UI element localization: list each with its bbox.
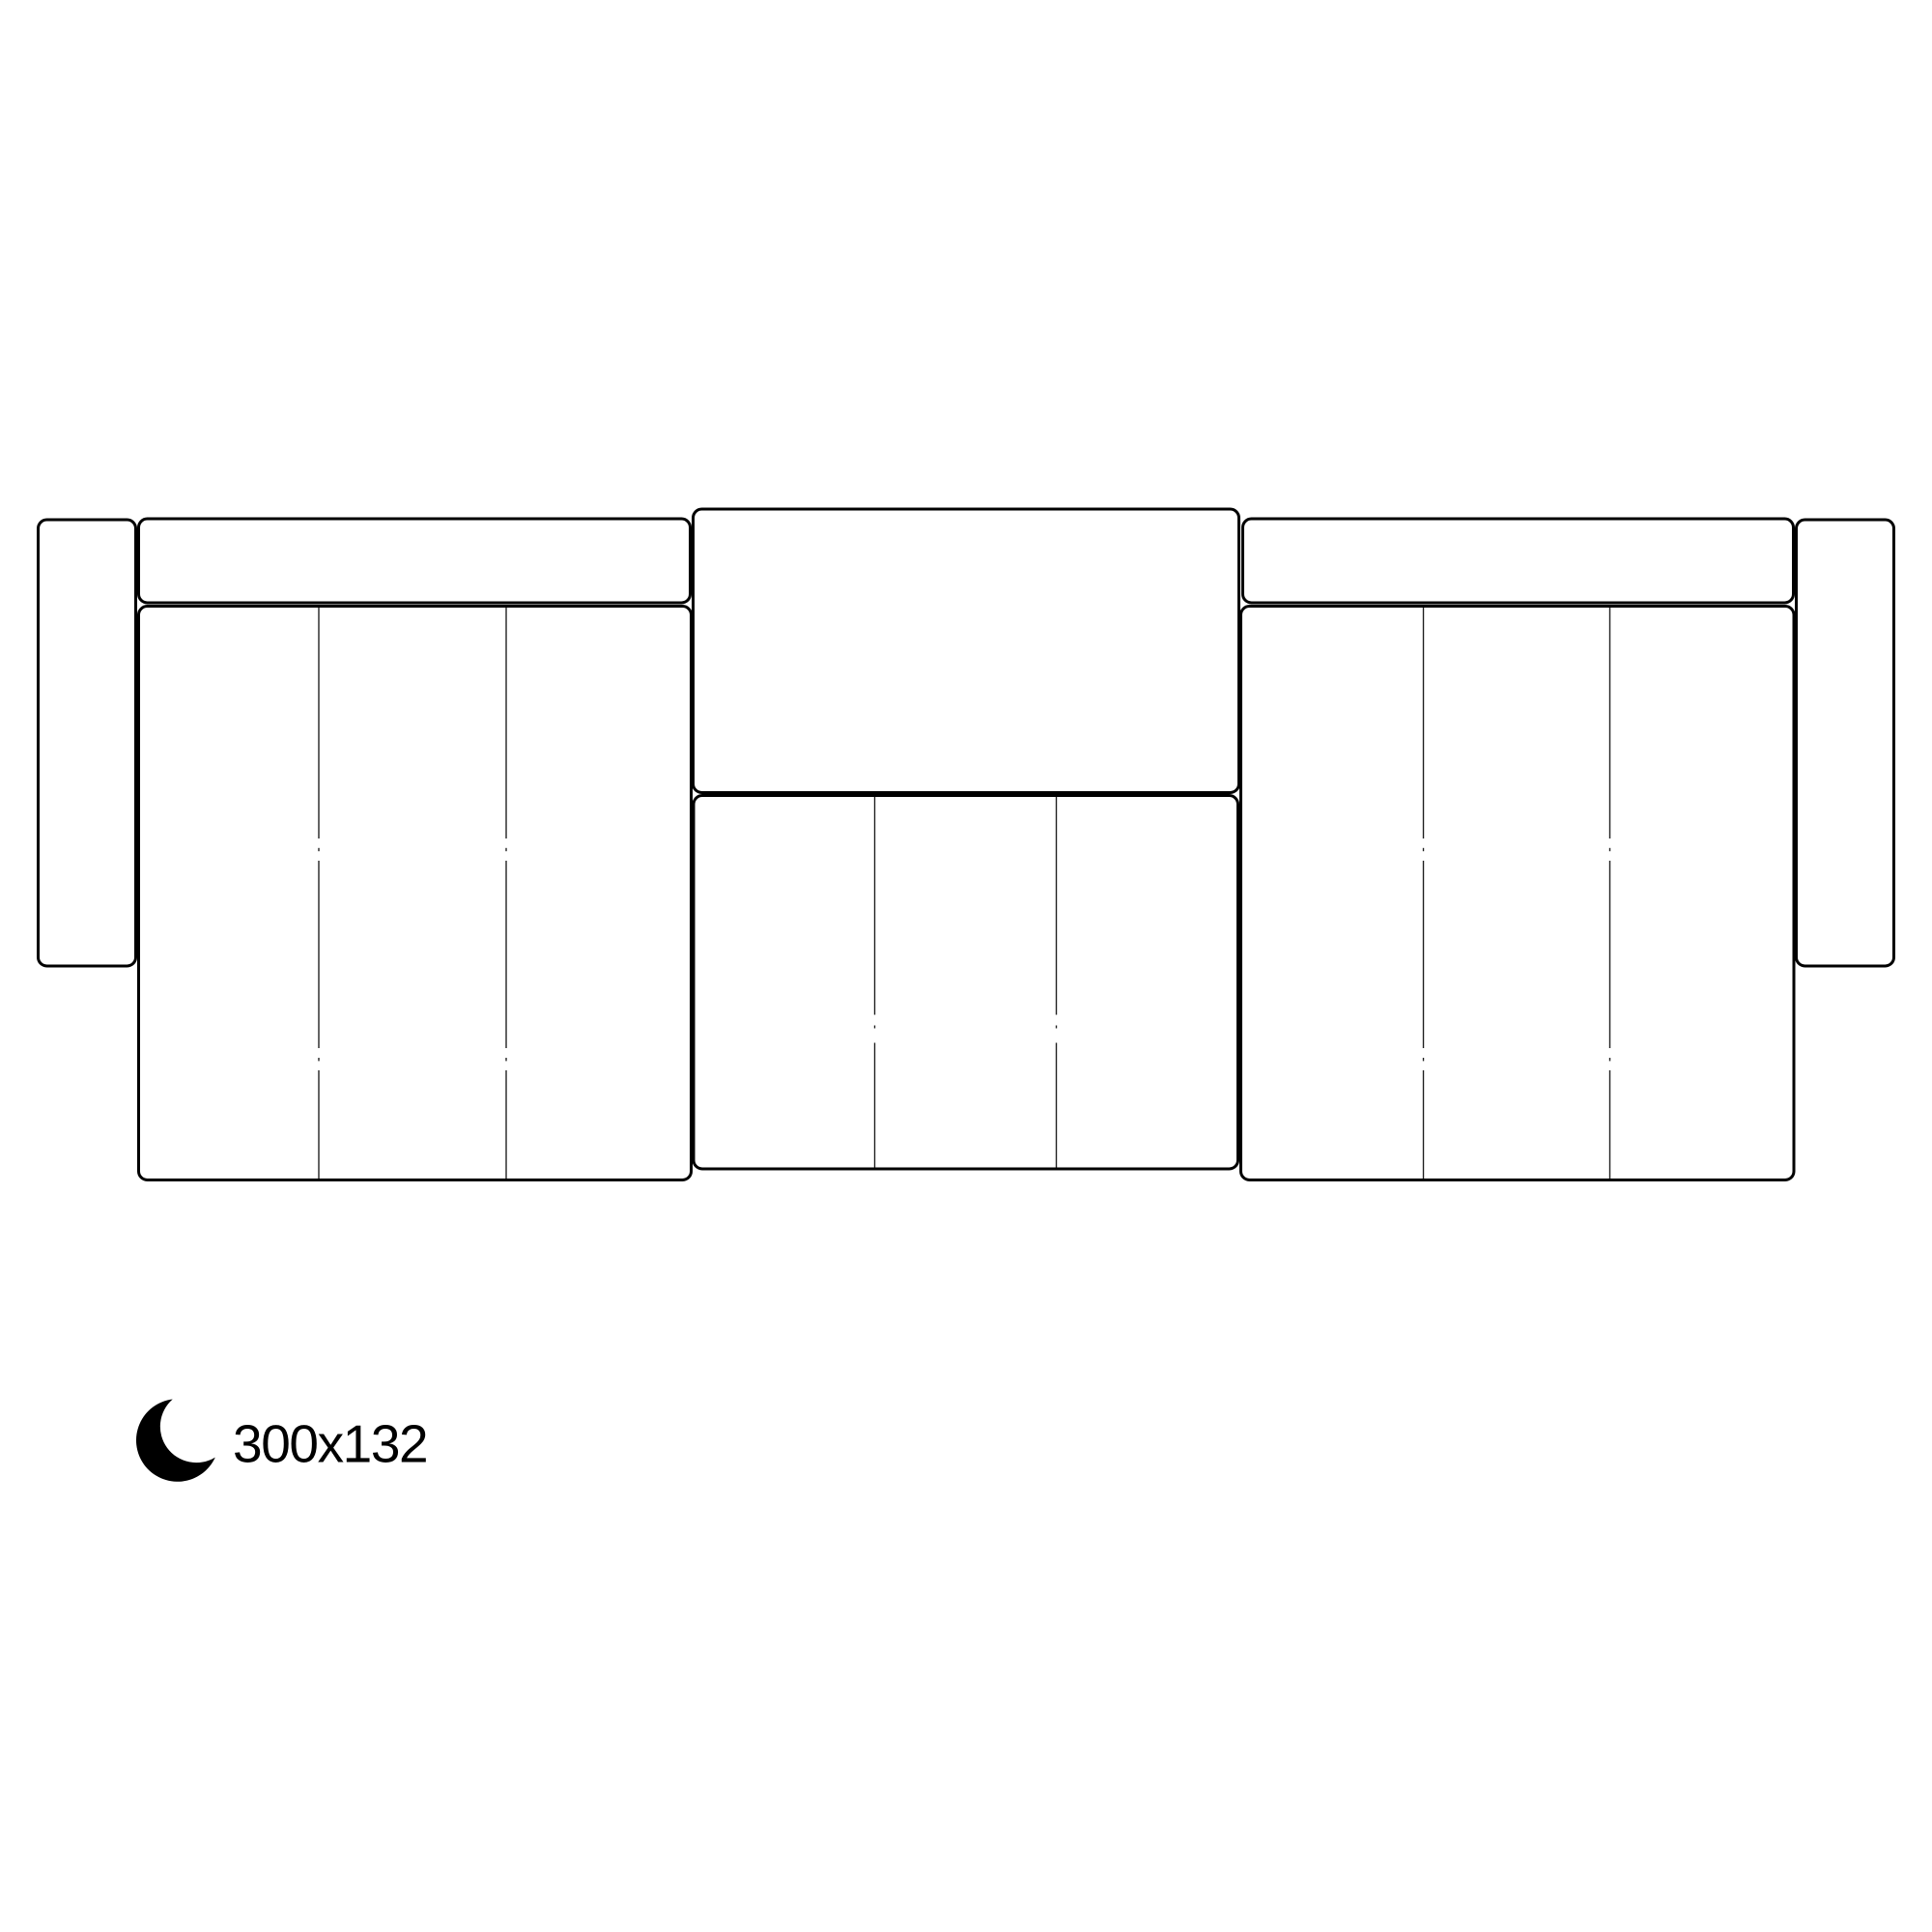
svg-text:300x132: 300x132 bbox=[233, 1414, 427, 1474]
